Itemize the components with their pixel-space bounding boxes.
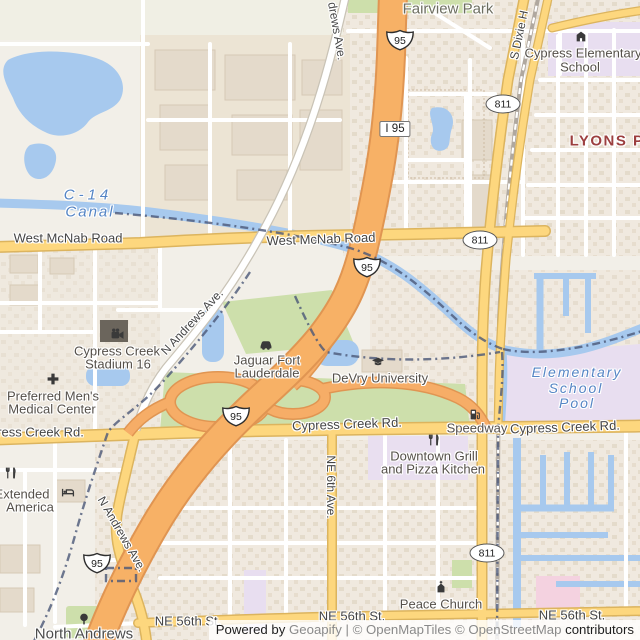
- attribution-bar: Powered by Geoapify | © OpenMapTiles © O…: [209, 620, 640, 640]
- interstate-shield: 95: [221, 405, 251, 427]
- route-shield-oval: 811: [470, 544, 505, 563]
- school-icon: [575, 30, 588, 43]
- openmaptiles-link[interactable]: © OpenMapTiles: [353, 622, 452, 637]
- map-label-lauderdale: Lauderdale: [234, 367, 299, 380]
- route-shield-oval: 811: [486, 95, 521, 114]
- map-canvas[interactable]: Fairview Parkdrews Ave.S Dixie HCypress …: [0, 0, 640, 640]
- map-label-lyons-park: LYONS PARK: [570, 134, 640, 149]
- tree-icon: [78, 613, 91, 626]
- map-label-school: School: [560, 61, 600, 74]
- map-label-peace-church: Peace Church: [400, 598, 482, 611]
- map-base-layer: [0, 0, 640, 640]
- map-label-medical-center: Medical Center: [8, 403, 95, 416]
- interstate-shield: 95: [385, 29, 415, 51]
- map-label-cypress-elementary: Cypress Elementary: [524, 47, 640, 60]
- map-label-north-andrews: North Andrews: [35, 627, 133, 640]
- lodging-icon: [62, 485, 75, 498]
- interstate-shield: 95: [82, 552, 112, 574]
- restaurant-icon: [5, 467, 18, 480]
- attribution-separator: |: [346, 622, 349, 637]
- map-label-west-mcnab-road: West McNab Road: [266, 231, 375, 248]
- cinema-icon: [111, 328, 124, 341]
- map-label-america: America: [6, 501, 54, 514]
- medical-cross-icon: [47, 373, 60, 386]
- map-label-cypress-creek-rd: Cypress Creek Rd.: [292, 416, 402, 433]
- map-label-west-mcnab-road: West McNab Road: [14, 232, 123, 245]
- map-label-cypress-creek-rd: Cypress Creek Rd.: [0, 426, 84, 439]
- interstate-shield: 95: [352, 256, 382, 278]
- map-label-pool: Pool: [559, 396, 595, 410]
- map-label-fairview-park: Fairview Park: [403, 2, 494, 17]
- map-label-cypress-creek-rd: Cypress Creek Rd.: [510, 419, 620, 436]
- map-label-c-14: C-14: [64, 188, 113, 203]
- route-name-box: I 95: [379, 121, 410, 137]
- map-label-and-pizza-kitchen: and Pizza Kitchen: [381, 463, 485, 476]
- map-label-stadium-16: Stadium 16: [85, 358, 151, 371]
- contributors-text: contributors: [565, 622, 634, 637]
- graduation-cap-icon: [372, 356, 385, 369]
- openstreetmap-link[interactable]: © OpenStreetMap: [455, 622, 561, 637]
- map-label-devry-university: DeVry University: [332, 372, 428, 385]
- geoapify-link[interactable]: Geoapify: [289, 622, 342, 637]
- map-label-speedway: Speedway: [447, 422, 508, 435]
- church-icon: [435, 581, 448, 594]
- restaurant-icon: [428, 434, 441, 447]
- map-label-elementary: Elementary: [532, 365, 623, 379]
- map-label-school: School: [549, 381, 604, 395]
- powered-by-text: Powered by: [216, 622, 286, 637]
- map-label-canal: Canal: [65, 205, 114, 220]
- route-shield-oval: 811: [463, 231, 498, 250]
- map-label-ne-6th-ave: NE 6th Ave.: [325, 455, 337, 518]
- car-dealership-icon: [260, 338, 273, 351]
- fuel-pump-icon: [469, 408, 482, 421]
